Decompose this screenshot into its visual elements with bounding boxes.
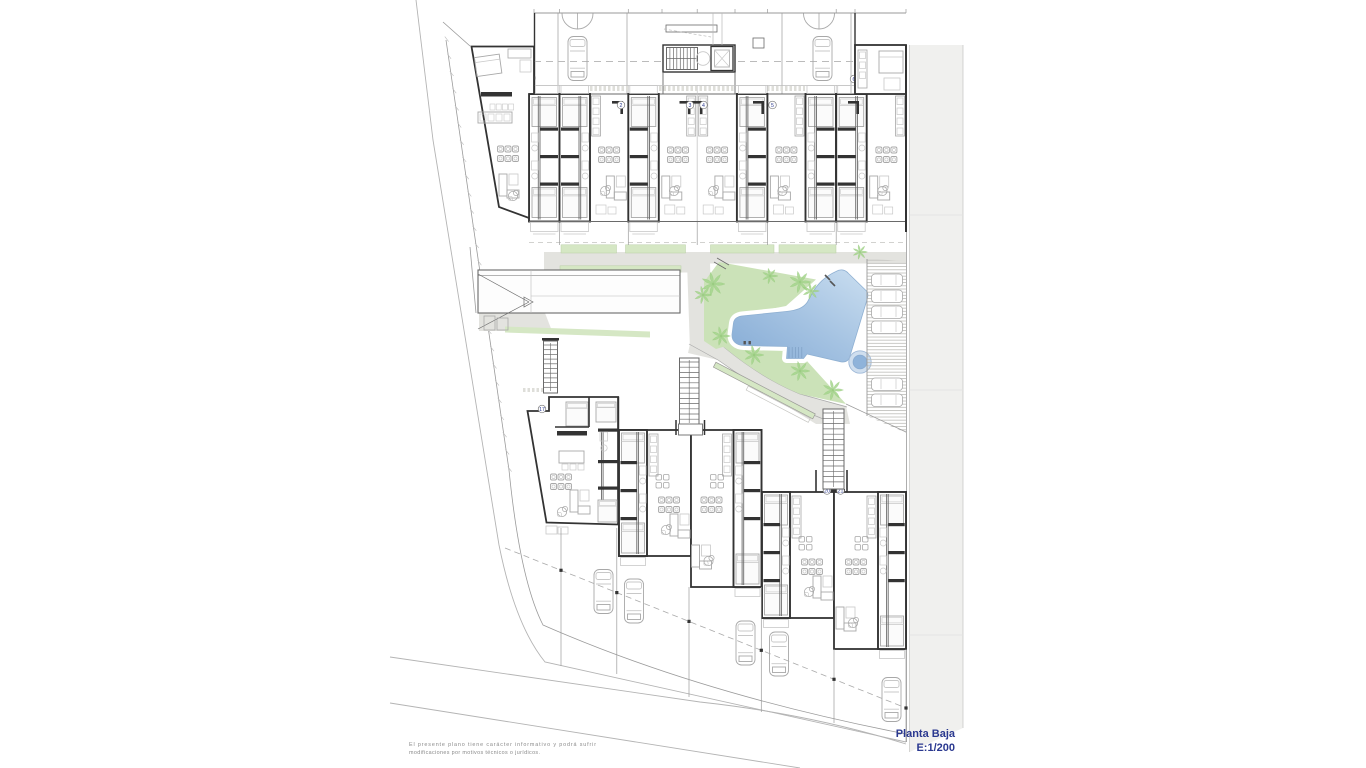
- svg-text:El presente plano tiene ca: El presente plano tiene carácter informa…: [409, 742, 596, 748]
- svg-text:E:1/200: E:1/200: [916, 742, 955, 754]
- svg-text:modificaciones por motivos téc: modificaciones por motivos técnicos o ju…: [409, 750, 540, 756]
- svg-text:5: 5: [771, 103, 774, 109]
- svg-text:3: 3: [689, 103, 692, 109]
- svg-text:2: 2: [620, 103, 623, 109]
- svg-text:Planta Baja: Planta Baja: [896, 728, 956, 740]
- svg-text:17: 17: [539, 407, 545, 413]
- svg-text:4: 4: [702, 103, 705, 109]
